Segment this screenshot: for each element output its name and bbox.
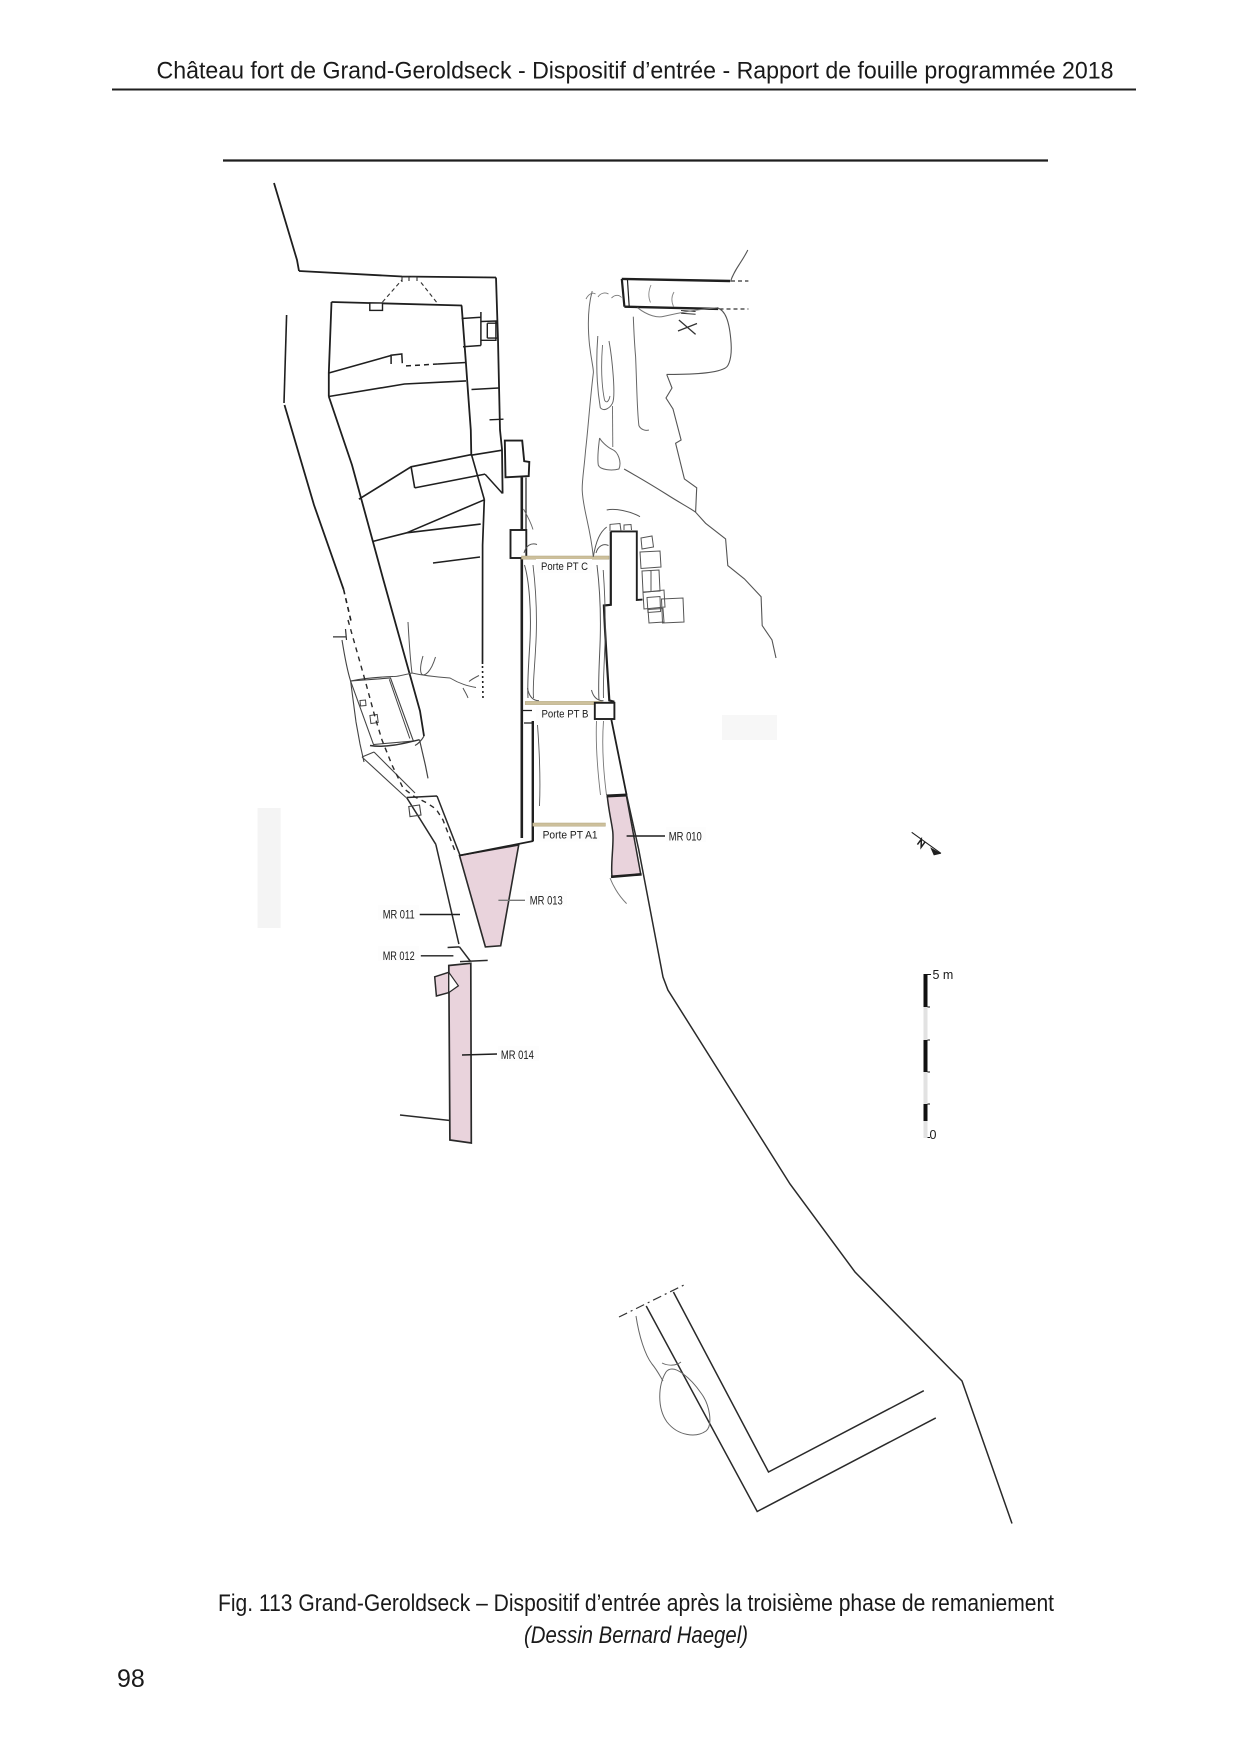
svg-text:Porte PT B: Porte PT B [542,709,589,721]
svg-text:Fig. 113 Grand-Geroldseck – Di: Fig. 113 Grand-Geroldseck – Dispositif d… [218,1590,1054,1617]
svg-text:MR 012: MR 012 [383,951,415,963]
svg-text:MR 014: MR 014 [501,1050,534,1062]
svg-text:Porte PT C: Porte PT C [541,561,588,573]
svg-text:Porte PT A1: Porte PT A1 [543,830,598,842]
svg-text:5 m: 5 m [933,968,954,982]
svg-text:MR 010: MR 010 [669,832,702,844]
svg-text:(Dessin Bernard Haegel): (Dessin Bernard Haegel) [524,1622,748,1649]
svg-text:MR 013: MR 013 [530,896,563,908]
svg-text:Château fort de Grand-Geroldse: Château fort de Grand-Geroldseck - Dispo… [157,58,1114,85]
svg-text:98: 98 [117,1665,145,1693]
svg-text:MR 011: MR 011 [383,910,415,922]
svg-text:0: 0 [930,1128,937,1142]
